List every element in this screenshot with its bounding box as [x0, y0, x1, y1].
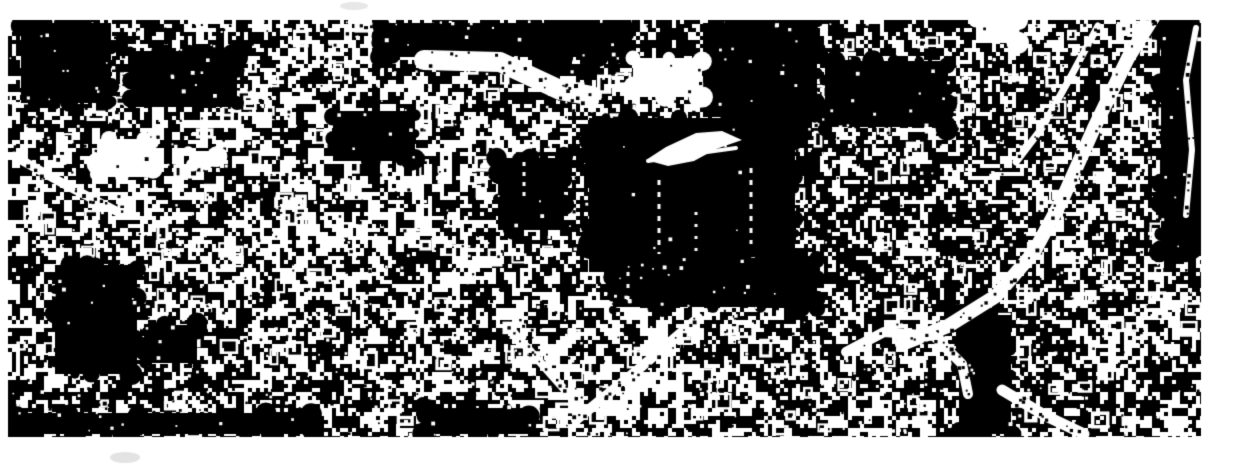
- page: [0, 0, 1240, 466]
- binarized-aerial-image: [0, 0, 1240, 466]
